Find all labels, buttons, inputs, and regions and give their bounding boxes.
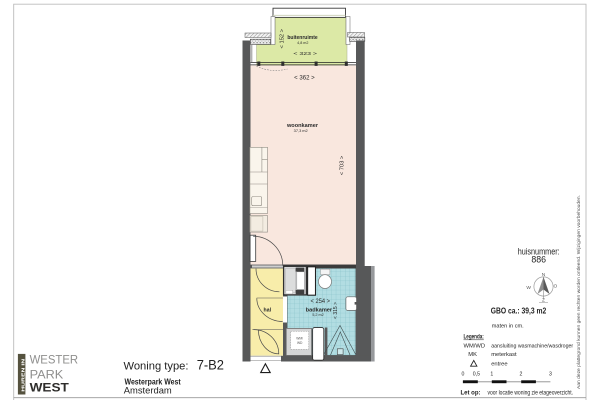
svg-text:WD: WD	[297, 341, 303, 345]
svg-text:GBO ca.: 39,3 m2: GBO ca.: 39,3 m2	[491, 305, 547, 315]
svg-text:meterkast: meterkast	[491, 352, 517, 358]
svg-text:3: 3	[549, 371, 552, 377]
svg-text:1: 1	[490, 371, 493, 377]
svg-text:W: W	[526, 285, 531, 291]
svg-text:886: 886	[531, 255, 546, 265]
svg-text:Amsterdam: Amsterdam	[124, 385, 172, 396]
svg-text:7-B2: 7-B2	[197, 356, 224, 372]
svg-text:O: O	[554, 284, 558, 290]
svg-text:37,3 m2: 37,3 m2	[294, 128, 308, 133]
svg-text:Let op:: Let op:	[461, 390, 481, 396]
svg-text:< 703 >: < 703 >	[340, 156, 346, 176]
svg-text:entree: entree	[491, 361, 507, 367]
svg-text:hal: hal	[264, 308, 272, 314]
svg-text:maten in cm.: maten in cm.	[492, 323, 524, 329]
svg-text:voor locatie woning zie etageo: voor locatie woning zie etageoverzicht.	[488, 390, 574, 396]
svg-text:< 315 >: < 315 >	[333, 302, 339, 319]
svg-text:< 323 >: < 323 >	[293, 51, 317, 56]
svg-text:N: N	[542, 272, 546, 278]
svg-text:0: 0	[461, 371, 464, 377]
svg-text:4,8 m2: 4,8 m2	[297, 41, 308, 45]
svg-text:< 362 >: < 362 >	[294, 75, 315, 82]
svg-text:WM/WD: WM/WD	[464, 344, 486, 350]
svg-text:2: 2	[520, 371, 523, 377]
svg-text:< 254 >: < 254 >	[311, 298, 331, 305]
svg-text:Aan deze plattegrond kunnen ge: Aan deze plattegrond kunnen geen rechten…	[576, 195, 581, 389]
svg-text:PARK: PARK	[30, 368, 64, 382]
svg-text:WEST: WEST	[30, 381, 70, 395]
svg-text:MK: MK	[468, 352, 477, 358]
svg-text:WESTER: WESTER	[30, 353, 79, 367]
svg-text:< 152 >: < 152 >	[279, 29, 285, 49]
svg-text:0,5: 0,5	[473, 371, 480, 377]
svg-text:HUREN IN: HUREN IN	[20, 358, 25, 392]
svg-text:Woning type:: Woning type:	[124, 361, 189, 373]
svg-text:5,2 m2: 5,2 m2	[312, 313, 323, 317]
svg-text:aansluiting wasmachine/wasdrog: aansluiting wasmachine/wasdroger	[491, 344, 573, 350]
